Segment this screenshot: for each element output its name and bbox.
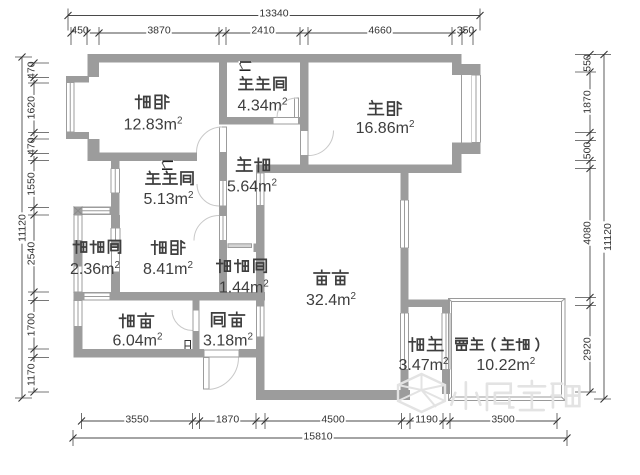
svg-text:1870: 1870 bbox=[582, 90, 594, 114]
svg-text:1620: 1620 bbox=[26, 96, 38, 120]
svg-text:3550: 3550 bbox=[125, 414, 149, 426]
svg-text:1.44m2: 1.44m2 bbox=[219, 278, 269, 296]
svg-text:11120: 11120 bbox=[602, 223, 614, 251]
svg-text:32.4m2: 32.4m2 bbox=[306, 291, 356, 309]
svg-text:2.36m2: 2.36m2 bbox=[70, 260, 120, 278]
svg-text:500: 500 bbox=[582, 142, 594, 160]
svg-text:15810: 15810 bbox=[303, 431, 332, 443]
svg-text:3.18m2: 3.18m2 bbox=[203, 331, 253, 349]
svg-text:2540: 2540 bbox=[26, 242, 38, 266]
svg-text:3870: 3870 bbox=[147, 25, 171, 37]
svg-text:4500: 4500 bbox=[321, 414, 345, 426]
svg-text:5.64m2: 5.64m2 bbox=[227, 177, 277, 195]
svg-text:2410: 2410 bbox=[251, 25, 275, 37]
svg-text:10.22m2: 10.22m2 bbox=[476, 356, 535, 374]
svg-text:4080: 4080 bbox=[582, 221, 594, 245]
svg-text:1700: 1700 bbox=[26, 313, 38, 337]
svg-text:4.34m2: 4.34m2 bbox=[238, 96, 288, 114]
svg-text:11120: 11120 bbox=[17, 214, 29, 242]
svg-text:4660: 4660 bbox=[368, 25, 392, 37]
svg-text:8.41m2: 8.41m2 bbox=[143, 260, 193, 278]
svg-text:13340: 13340 bbox=[259, 8, 288, 20]
svg-text:12.83m2: 12.83m2 bbox=[124, 115, 183, 133]
svg-text:6.04m2: 6.04m2 bbox=[113, 331, 163, 349]
svg-text:1550: 1550 bbox=[26, 172, 38, 196]
svg-text:1170: 1170 bbox=[26, 363, 38, 386]
svg-text:1870: 1870 bbox=[216, 414, 240, 426]
svg-text:3500: 3500 bbox=[491, 414, 515, 426]
svg-text:16.86m2: 16.86m2 bbox=[356, 119, 415, 137]
svg-text:3.47m2: 3.47m2 bbox=[399, 356, 449, 374]
svg-text:1190: 1190 bbox=[415, 414, 438, 426]
svg-text:2920: 2920 bbox=[582, 337, 594, 361]
svg-text:5.13m2: 5.13m2 bbox=[144, 190, 194, 208]
